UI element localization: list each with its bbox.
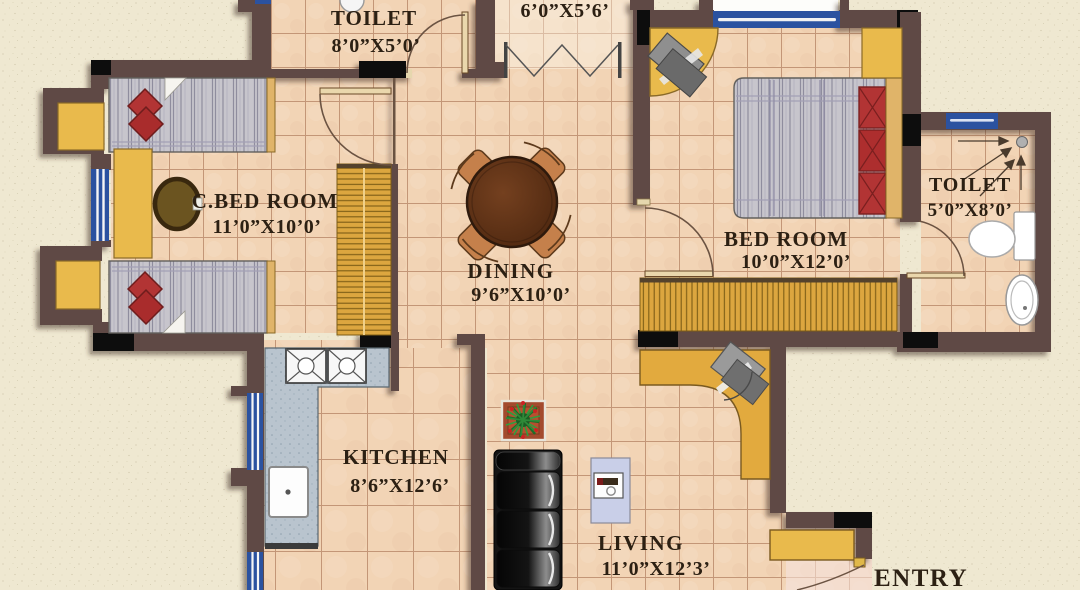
svg-text:KITCHEN: KITCHEN — [343, 445, 449, 469]
svg-text:TOILET: TOILET — [331, 6, 417, 30]
svg-text:9’6”X10’0’: 9’6”X10’0’ — [471, 284, 570, 306]
svg-text:TOILET: TOILET — [929, 174, 1011, 196]
svg-text:8’0”X5’0’: 8’0”X5’0’ — [332, 35, 421, 57]
svg-text:11’0”X12’3’: 11’0”X12’3’ — [602, 558, 711, 580]
svg-text:BED ROOM: BED ROOM — [724, 227, 848, 251]
svg-text:10’0”X12’0’: 10’0”X12’0’ — [741, 251, 851, 273]
svg-text:5’0”X8’0’: 5’0”X8’0’ — [928, 200, 1013, 221]
svg-text:C.BED ROOM: C.BED ROOM — [192, 189, 339, 213]
svg-text:DINING: DINING — [467, 259, 554, 283]
svg-text:ENTRY: ENTRY — [874, 565, 968, 590]
svg-text:LIVING: LIVING — [598, 531, 684, 555]
svg-text:8’6”X12’6’: 8’6”X12’6’ — [350, 475, 449, 497]
svg-text:6’0”X5’6’: 6’0”X5’6’ — [521, 0, 610, 22]
svg-text:11’0”X10’0’: 11’0”X10’0’ — [213, 216, 322, 238]
